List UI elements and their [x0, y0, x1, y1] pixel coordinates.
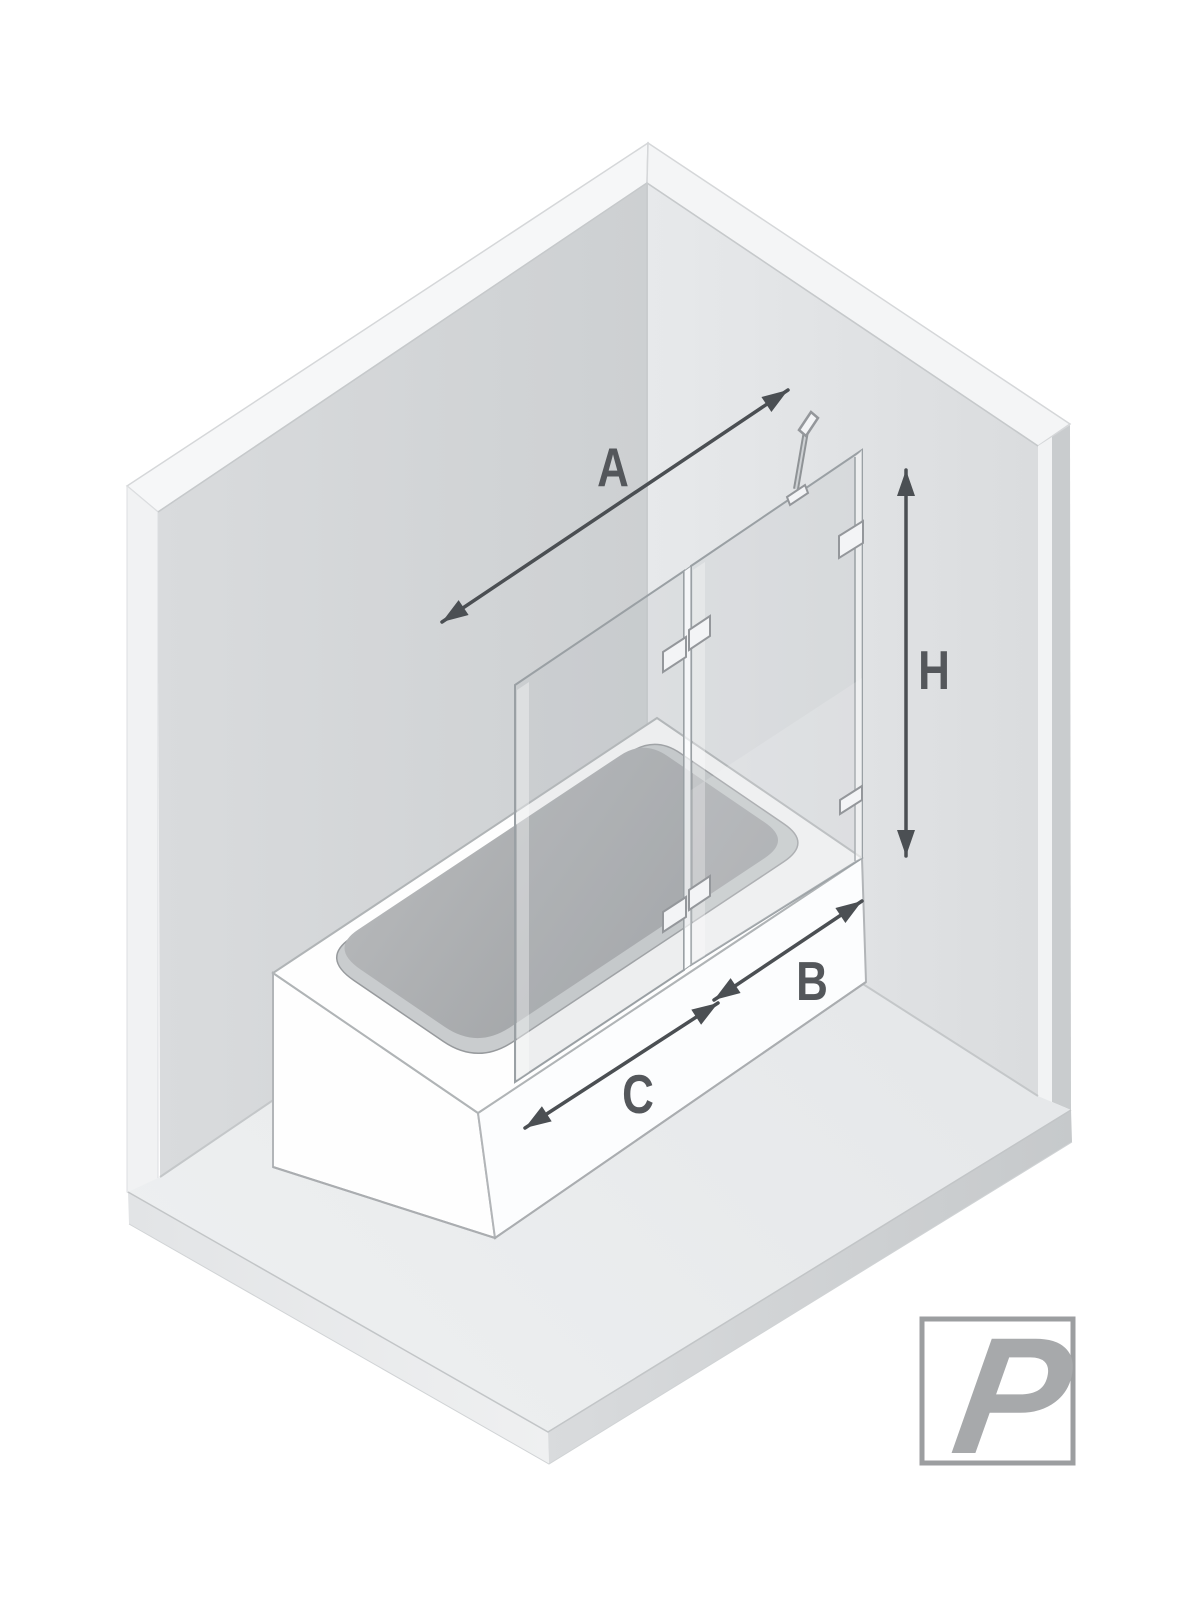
dimension-label-a: A	[597, 436, 629, 498]
diagram-canvas: A H B C P	[0, 0, 1200, 1606]
dimension-label-c: C	[622, 1063, 654, 1125]
left-wall-end-strip	[127, 486, 158, 1208]
glass-reflection-fixed	[517, 682, 529, 1080]
right-wall-end-strip-gray	[1052, 425, 1071, 1110]
isometric-bath-screen-diagram: A H B C P	[0, 0, 1200, 1606]
dimension-label-b: B	[796, 950, 828, 1012]
brand-logo: P	[922, 1304, 1084, 1489]
dimension-label-h: H	[918, 639, 950, 701]
right-wall-end-strip-light	[1038, 437, 1052, 1102]
